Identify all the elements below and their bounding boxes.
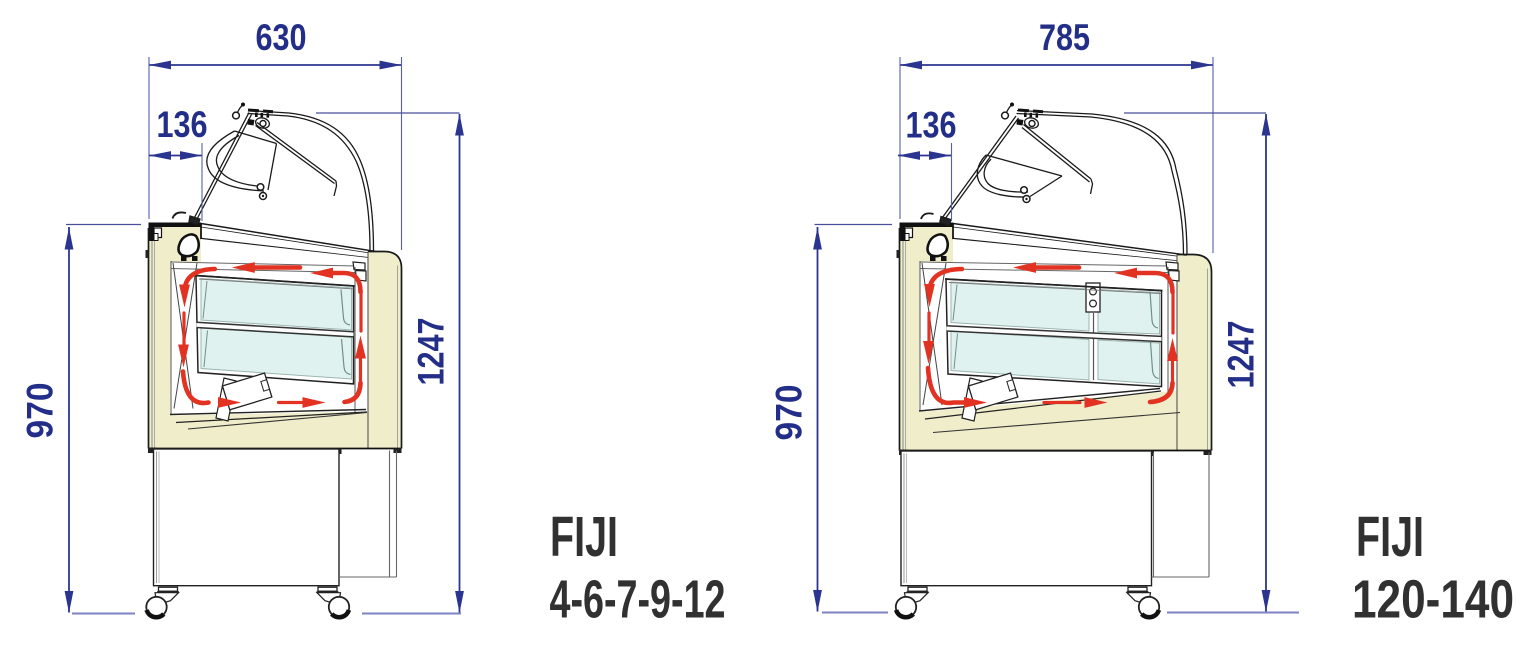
svg-text:970: 970 [20, 383, 61, 439]
svg-text:1247: 1247 [1221, 321, 1262, 389]
svg-text:630: 630 [256, 17, 307, 58]
svg-text:FIJI: FIJI [550, 505, 618, 569]
svg-text:120-140: 120-140 [1352, 571, 1514, 630]
svg-text:785: 785 [1039, 17, 1090, 58]
svg-text:FIJI: FIJI [1356, 505, 1424, 569]
svg-text:136: 136 [906, 105, 957, 146]
svg-text:1247: 1247 [411, 318, 452, 386]
svg-text:4-6-7-9-12: 4-6-7-9-12 [550, 571, 726, 630]
svg-text:136: 136 [157, 104, 208, 145]
svg-text:970: 970 [769, 385, 810, 441]
